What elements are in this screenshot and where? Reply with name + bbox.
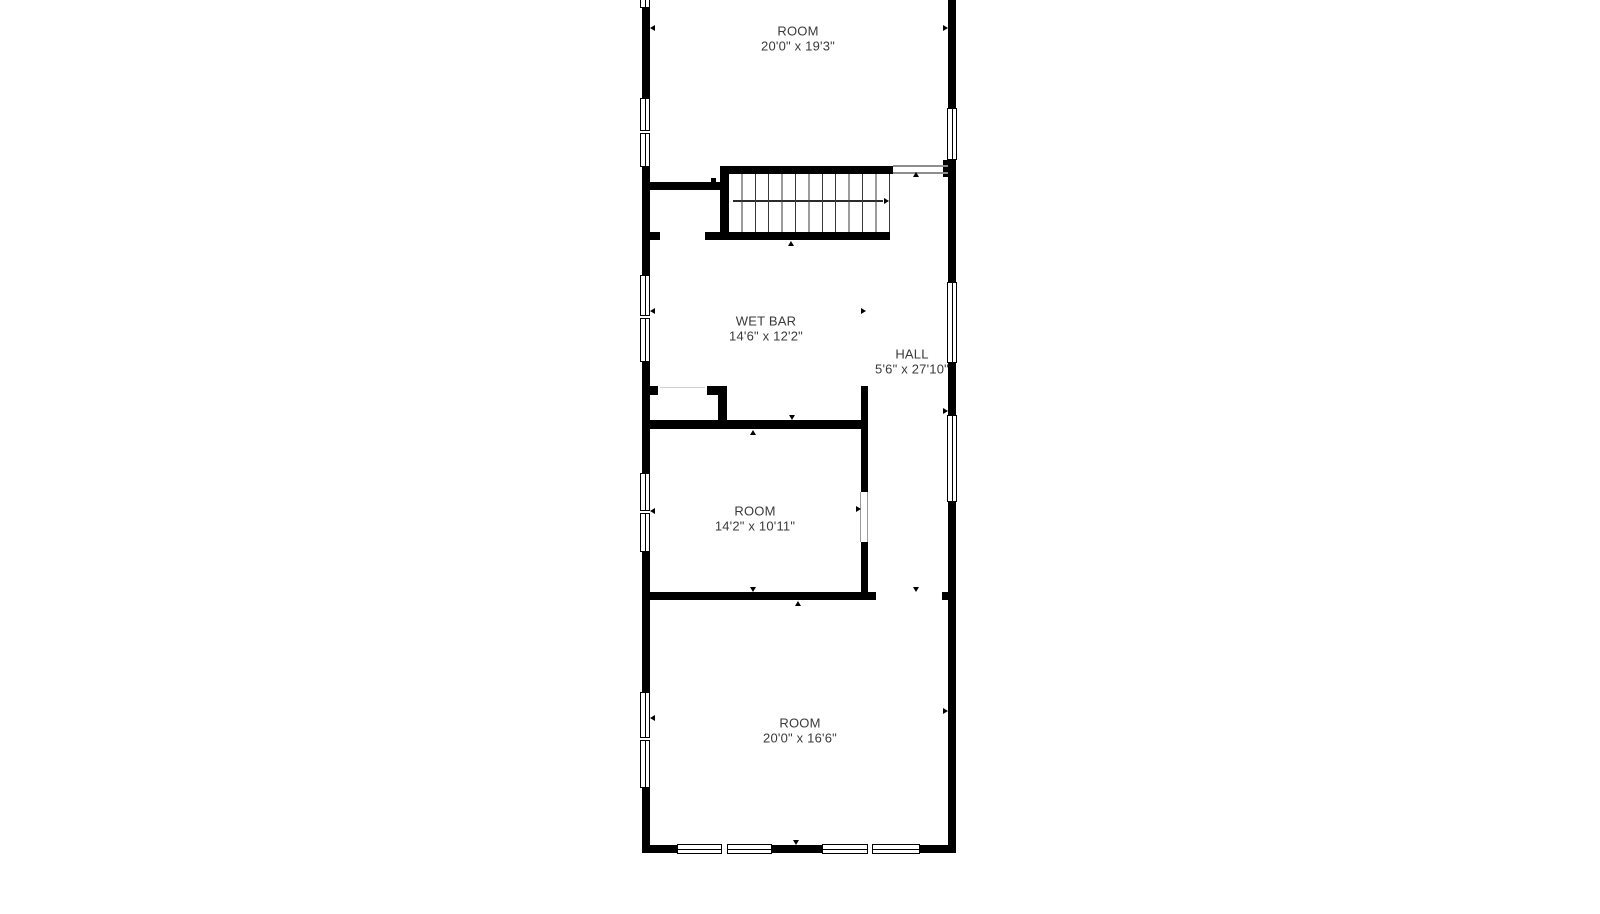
window <box>822 844 868 854</box>
dimension-marker-right <box>861 308 866 314</box>
window <box>727 844 772 854</box>
window <box>640 473 650 511</box>
wall-segment <box>942 592 948 600</box>
window <box>947 415 957 502</box>
dimension-marker-up <box>750 430 756 435</box>
wall-segment <box>650 386 658 395</box>
wall-segment <box>642 788 650 853</box>
wall-segment <box>650 232 660 240</box>
wall-segment <box>948 0 956 108</box>
wall-segment <box>861 386 868 492</box>
wall-segment <box>718 386 727 421</box>
thin-line <box>660 387 705 388</box>
wall-segment <box>948 502 956 853</box>
dimension-marker-up <box>913 172 919 177</box>
window <box>947 108 957 160</box>
dimension-marker-down <box>789 415 795 420</box>
room-dimensions: 14'2" x 10'11" <box>715 519 795 534</box>
room-name: WET BAR <box>729 315 803 330</box>
dimension-marker-left <box>650 25 655 31</box>
window <box>640 0 650 8</box>
room-name: HALL <box>875 348 949 363</box>
dimension-marker-right <box>856 506 861 512</box>
dimension-marker-right <box>943 25 948 31</box>
floor-plan-canvas: ROOM 20'0" x 19'3" WET BAR 14'6" x 12'2"… <box>0 0 1600 914</box>
window <box>640 275 650 316</box>
room-label-bottom: ROOM 20'0" x 16'6" <box>763 717 837 746</box>
dimension-marker-right <box>884 198 889 204</box>
dimension-marker-up <box>795 601 801 606</box>
wall-segment <box>705 232 890 240</box>
dimension-marker-right <box>943 708 948 714</box>
room-name: ROOM <box>715 505 795 520</box>
dimension-marker-left <box>650 715 655 721</box>
wall-segment <box>642 552 650 692</box>
dimension-marker-down <box>750 587 756 592</box>
dimension-marker-left <box>650 308 655 314</box>
wall-segment <box>711 178 716 182</box>
window <box>677 844 722 854</box>
dimension-marker-down <box>913 587 919 592</box>
room-dimensions: 20'0" x 19'3" <box>761 39 835 54</box>
window <box>872 844 920 854</box>
window <box>640 513 650 552</box>
dimension-marker-down <box>793 840 799 845</box>
wall-segment <box>920 845 956 853</box>
room-dimensions: 14'6" x 12'2" <box>729 329 803 344</box>
window <box>640 740 650 788</box>
wall-segment <box>948 363 956 415</box>
stair-treads <box>729 174 890 232</box>
wall-segment <box>642 845 677 853</box>
wall-segment <box>720 166 893 174</box>
wall-segment <box>650 592 876 600</box>
room-label-hall: HALL 5'6" x 27'10" <box>875 348 949 377</box>
wall-segment <box>948 160 956 282</box>
dimension-marker-right <box>943 408 948 414</box>
room-dimensions: 5'6" x 27'10" <box>875 362 949 377</box>
thin-line <box>893 172 948 174</box>
wall-segment <box>642 8 650 98</box>
room-label-middle: ROOM 14'2" x 10'11" <box>715 505 795 534</box>
room-name: ROOM <box>761 25 835 40</box>
wall-segment <box>772 845 822 853</box>
wall-segment <box>650 420 868 429</box>
window <box>640 692 650 738</box>
wall-segment <box>943 160 948 177</box>
dimension-marker-left <box>650 508 655 514</box>
thin-line <box>860 492 861 542</box>
room-label-wet-bar: WET BAR 14'6" x 12'2" <box>729 315 803 344</box>
window <box>640 133 650 167</box>
wall-segment <box>642 167 650 275</box>
wall-segment <box>720 166 729 240</box>
thin-line <box>893 165 948 167</box>
window <box>640 98 650 131</box>
room-label-top: ROOM 20'0" x 19'3" <box>761 25 835 54</box>
thin-line <box>867 492 868 542</box>
wall-segment <box>642 362 650 473</box>
wall-segment <box>650 182 722 190</box>
window <box>640 318 650 362</box>
room-name: ROOM <box>763 717 837 732</box>
dimension-marker-up <box>788 241 794 246</box>
room-dimensions: 20'0" x 16'6" <box>763 731 837 746</box>
